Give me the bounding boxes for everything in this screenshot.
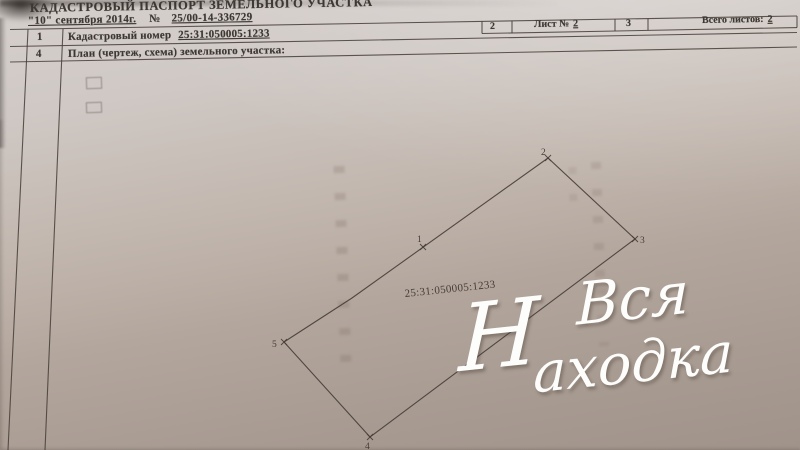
vertex-tick bbox=[281, 339, 287, 345]
header-cell-2: 2 bbox=[490, 21, 495, 32]
bleed-text-smudge bbox=[597, 288, 609, 346]
parcel-cadastral-label: 25:31:050005:1233 bbox=[404, 278, 496, 299]
vertex-tick bbox=[420, 244, 426, 250]
vertex-label: 2 bbox=[541, 148, 546, 158]
bleed-checkbox-ghost bbox=[86, 102, 102, 114]
photographed-cadastral-passport: КАДАСТРОВЫЙ ПАСПОРТ ЗЕМЕЛЬНОГО УЧАСТКА "… bbox=[0, 0, 800, 450]
parcel-plan: 1234525:31:050005:1233 bbox=[0, 0, 800, 450]
bleed-text-smudge bbox=[591, 162, 605, 280]
vertex-tick bbox=[367, 434, 373, 440]
vsya-nakhodka-watermark: Н Вся аходка bbox=[444, 254, 800, 450]
cadastral-number-label: Кадастровый номер bbox=[68, 29, 174, 43]
sheet-value: 2 bbox=[573, 18, 578, 29]
vertex-tick bbox=[367, 434, 373, 440]
photo-left-edge-shadow-soft bbox=[0, 120, 4, 450]
bleed-text-smudge bbox=[568, 167, 577, 207]
row-4-number: 4 bbox=[36, 48, 42, 60]
plan-row-label: План (чертеж, схема) земельного участка: bbox=[68, 44, 285, 60]
total-sheets-label: Всего листов: bbox=[702, 14, 764, 26]
row-1-number: 1 bbox=[37, 31, 43, 43]
bleed-checkbox-ghost bbox=[86, 77, 102, 90]
cadastral-number-row: Кадастровый номер 25:31:050005:1233 bbox=[68, 27, 270, 43]
vertex-tick bbox=[632, 236, 638, 242]
vertex-label: 5 bbox=[272, 340, 277, 350]
vertex-tick bbox=[420, 244, 426, 250]
watermark-initial: Н bbox=[458, 285, 541, 386]
issue-date: "10" сентября 2014г. bbox=[28, 13, 136, 27]
total-sheets-cell: Всего листов:2 bbox=[702, 14, 773, 26]
table-lines bbox=[0, 0, 800, 450]
total-sheets-value: 2 bbox=[767, 14, 772, 25]
number-sign: № bbox=[149, 13, 161, 25]
vertex-label: 1 bbox=[417, 235, 422, 245]
document-date-line: "10" сентября 2014г.№25/00-14-336729 bbox=[28, 11, 253, 27]
vertex-tick bbox=[545, 155, 551, 161]
vertex-tick bbox=[632, 236, 638, 242]
sheet-number-cell: Лист №2 bbox=[534, 18, 578, 30]
watermark-line1: Вся bbox=[576, 264, 689, 334]
document-number: 25/00-14-336729 bbox=[171, 11, 252, 24]
header-cell-3: 3 bbox=[626, 18, 631, 29]
vertex-label: 3 bbox=[640, 236, 645, 246]
watermark-line2: аходка bbox=[533, 325, 733, 402]
vertex-tick bbox=[545, 155, 551, 161]
bleed-text-smudge bbox=[334, 166, 352, 366]
vertex-tick bbox=[281, 339, 287, 345]
sheet-label: Лист № bbox=[534, 18, 569, 30]
cadastral-number-value: 25:31:050005:1233 bbox=[178, 27, 270, 41]
